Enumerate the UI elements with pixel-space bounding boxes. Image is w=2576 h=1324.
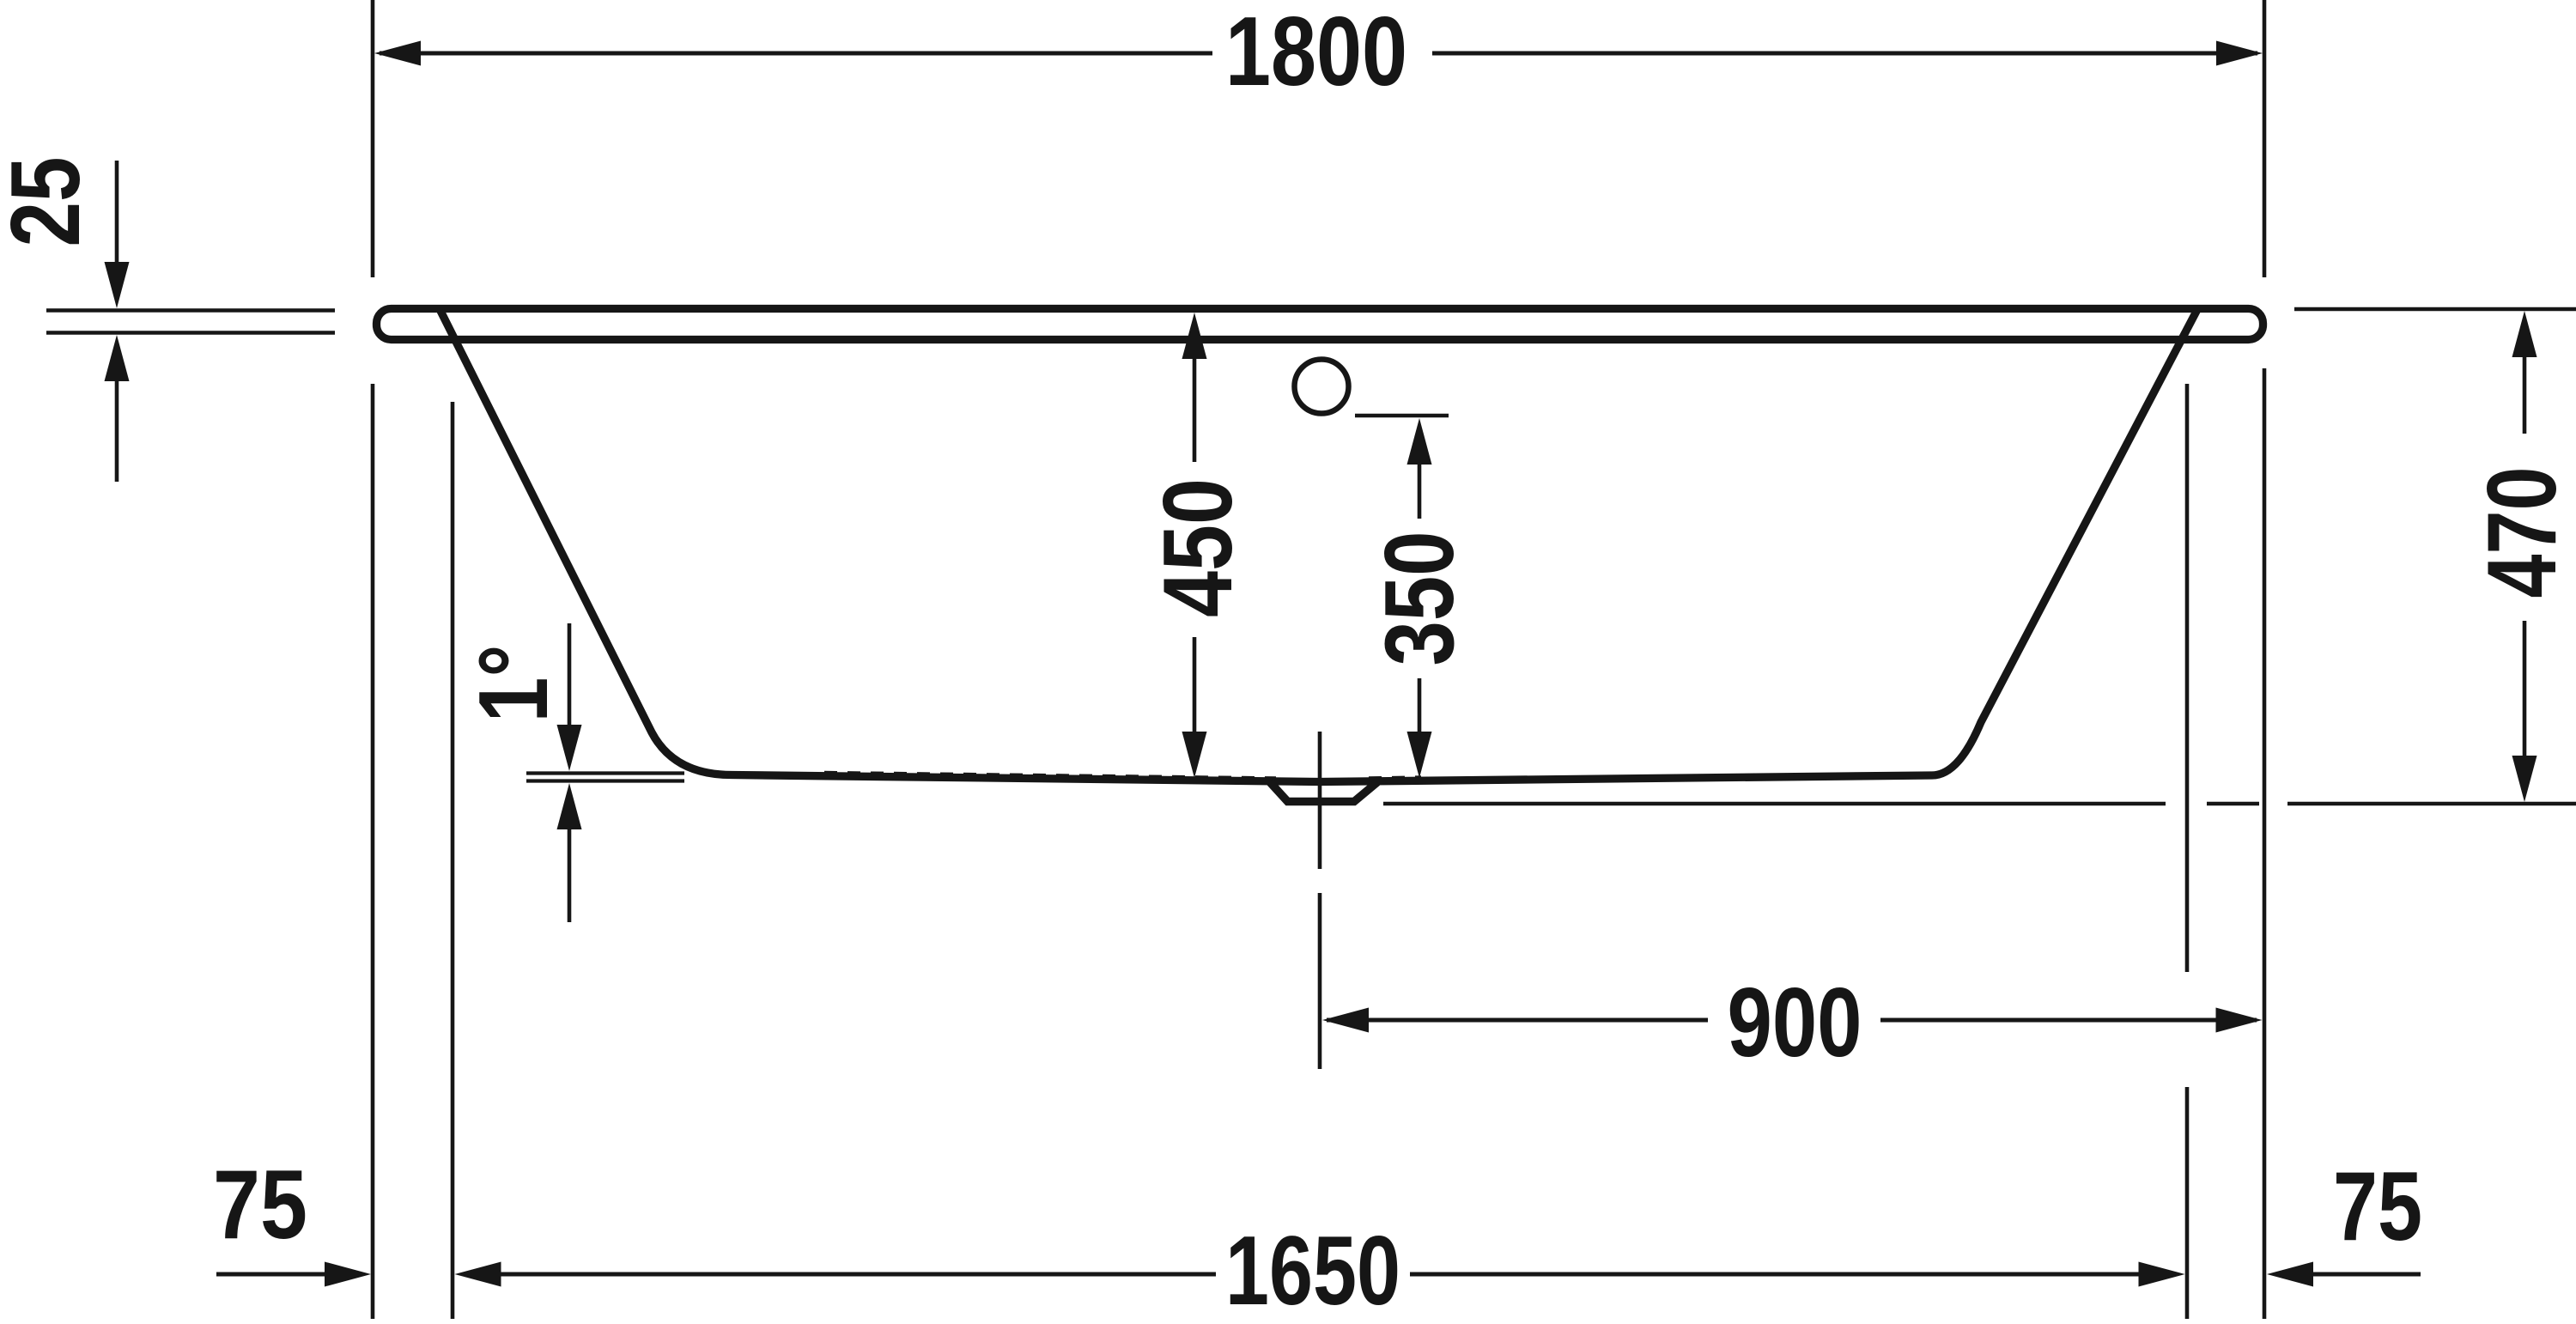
svg-text:1650: 1650 xyxy=(1225,1217,1400,1324)
svg-text:900: 900 xyxy=(1728,969,1862,1078)
svg-text:1°: 1° xyxy=(459,645,568,723)
svg-text:75: 75 xyxy=(213,1151,307,1260)
svg-text:25: 25 xyxy=(0,157,100,247)
svg-text:450: 450 xyxy=(1144,478,1253,617)
svg-text:470: 470 xyxy=(2468,467,2576,598)
svg-text:350: 350 xyxy=(1365,531,1474,666)
svg-text:75: 75 xyxy=(2333,1152,2422,1261)
svg-text:1800: 1800 xyxy=(1225,0,1407,106)
